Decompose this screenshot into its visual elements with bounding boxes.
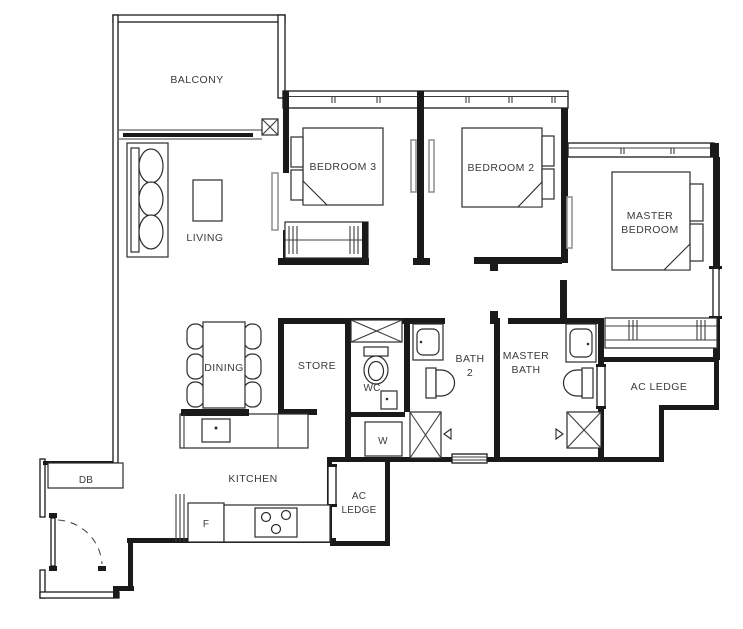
room-master-bath: MASTER BATH (503, 324, 601, 448)
pillow (690, 184, 703, 221)
room-ac-ledge-kitchen: AC LEDGE (342, 491, 377, 516)
room-bedroom3: BEDROOM 3 (285, 128, 416, 258)
room-dining: DINING (187, 322, 261, 408)
sliding-door-leaf (567, 197, 572, 248)
master-bedroom-label-2: BEDROOM (621, 224, 678, 236)
db-label: DB (79, 475, 93, 486)
pillow (291, 137, 303, 167)
window-post (283, 91, 289, 110)
window (597, 366, 605, 408)
door-swing-arc (58, 520, 102, 564)
sliding-door-leaf (429, 140, 434, 192)
wall (714, 357, 719, 410)
floorplan-canvas: BALCONY LIVING BEDROOM 3 (0, 0, 743, 629)
wall (560, 280, 567, 318)
wardrobe (605, 318, 717, 348)
wall (385, 462, 390, 546)
wall (40, 592, 119, 598)
store-label: STORE (298, 360, 336, 372)
wall (113, 15, 118, 463)
window-band-bedrooms (283, 91, 568, 110)
room-ac-ledge-right: AC LEDGE (631, 381, 688, 393)
wall (417, 110, 424, 258)
ac-ledge-right-label: AC LEDGE (631, 381, 688, 393)
master-bedroom-label-1: MASTER (627, 210, 673, 222)
window-post (710, 143, 719, 157)
wc-label: WC (363, 383, 380, 394)
wall (278, 324, 284, 415)
stove-counter (224, 505, 330, 542)
door-stop-tab (490, 263, 498, 271)
wall (413, 258, 430, 265)
wall (278, 258, 369, 265)
pillow (690, 224, 703, 261)
kitchen-label: KITCHEN (228, 473, 277, 485)
dining-label: DINING (204, 362, 243, 374)
coffee-table (193, 180, 222, 221)
sofa (127, 143, 168, 257)
louvre (452, 454, 487, 463)
window (283, 91, 568, 108)
window-band-master (568, 143, 719, 157)
door-swing-arrow (444, 429, 451, 439)
wall (659, 405, 719, 410)
window-cap (709, 266, 722, 269)
washer-label: W (378, 436, 388, 447)
wardrobe (285, 222, 368, 258)
pillow (542, 169, 554, 199)
toilet (364, 347, 388, 384)
pillow (291, 170, 303, 200)
room-balcony: BALCONY (119, 74, 278, 139)
wall (330, 541, 388, 546)
shower (410, 412, 441, 458)
window-cap (327, 464, 337, 467)
master-bath-label-1: MASTER (503, 350, 549, 362)
pillow (542, 136, 554, 166)
room-kitchen: F KITCHEN (176, 409, 330, 542)
window-master-right (709, 266, 722, 319)
refrigerator: F (188, 503, 224, 542)
door-leaf (51, 518, 55, 566)
wall (345, 412, 405, 417)
room-wc: WC W (351, 320, 402, 456)
sliding-door-leaf (272, 173, 278, 230)
shaft-box-icon (262, 119, 278, 135)
ac-ledge-kitchen-label-1: AC (352, 491, 366, 502)
wall (345, 318, 351, 462)
fridge-label: F (203, 519, 209, 530)
window-ac-ledge-right (596, 364, 606, 409)
bath2-label-2: 2 (467, 367, 473, 379)
room-bath2: BATH 2 (410, 324, 485, 458)
wall (713, 157, 720, 270)
window-cap (596, 406, 606, 409)
sliding-door-leaf (123, 133, 253, 137)
ac-ledge-kitchen-label-2: LEDGE (342, 505, 377, 516)
sliding-door-leaf (411, 140, 416, 192)
sliding-door-track (176, 494, 184, 542)
window (713, 268, 719, 318)
balcony-label: BALCONY (170, 74, 223, 86)
wall (600, 357, 719, 362)
living-label: LIVING (186, 232, 223, 244)
bedroom2-label: BEDROOM 2 (467, 162, 534, 174)
bedroom3-label: BEDROOM 3 (309, 161, 376, 173)
louvre-vent (452, 454, 487, 463)
room-living: LIVING (127, 143, 278, 257)
wall (40, 459, 45, 517)
wall (494, 318, 500, 462)
door-swing-arrow (556, 429, 563, 439)
kitchen-sink (202, 419, 230, 442)
shower (567, 412, 601, 448)
wc-sink (381, 391, 397, 409)
window-ac-ledge-kitchen (327, 464, 337, 507)
wall (604, 457, 664, 462)
vent-shaft (351, 320, 402, 342)
window (568, 143, 714, 157)
db-cabinet: DB (48, 463, 123, 488)
wall (128, 543, 133, 591)
wall (404, 318, 410, 412)
bathroom-sink (566, 324, 596, 362)
entrance: DB (48, 463, 123, 571)
entrance-door (49, 513, 106, 571)
toilet (426, 368, 455, 398)
room-bedroom2: BEDROOM 2 (429, 128, 554, 207)
bath2-label-1: BATH (455, 353, 484, 365)
window (328, 466, 336, 506)
bathroom-sink (413, 324, 443, 360)
kitchen-counter-sink (180, 409, 308, 448)
wall (659, 405, 664, 462)
wall (508, 318, 604, 324)
master-bath-label-2: BATH (511, 364, 540, 376)
wall (474, 257, 562, 264)
toilet (563, 368, 593, 398)
wall (113, 586, 119, 598)
washing-machine: W (365, 422, 402, 456)
wall (278, 15, 285, 98)
window-post (417, 91, 424, 110)
window-cap (596, 364, 606, 367)
room-store: STORE (298, 360, 336, 372)
floorplan-page: BALCONY LIVING BEDROOM 3 (0, 0, 743, 629)
wall (113, 15, 285, 22)
